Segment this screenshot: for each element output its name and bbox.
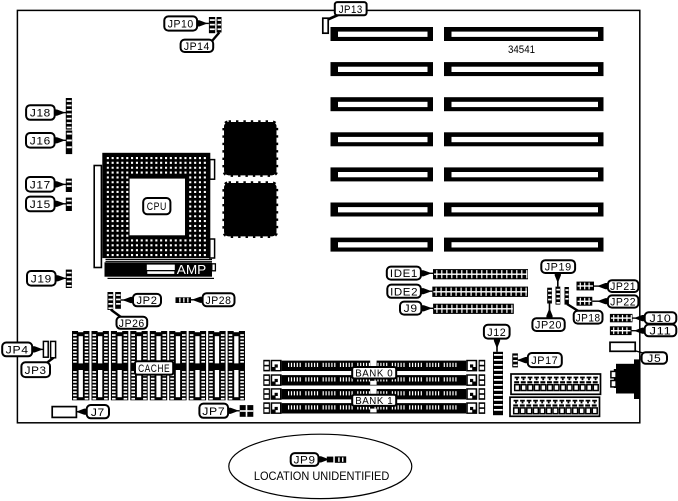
svg-text:BANK 1: BANK 1 bbox=[355, 396, 393, 407]
svg-text:JP2: JP2 bbox=[137, 295, 158, 307]
svg-text:JP19: JP19 bbox=[545, 262, 572, 274]
svg-text:JP22: JP22 bbox=[610, 297, 636, 309]
svg-text:J18: J18 bbox=[30, 108, 51, 120]
svg-text:J9: J9 bbox=[404, 303, 418, 315]
svg-text:LOCATION UNIDENTIFIED: LOCATION UNIDENTIFIED bbox=[254, 469, 390, 483]
svg-text:J16: J16 bbox=[30, 135, 51, 147]
svg-text:34541: 34541 bbox=[508, 44, 535, 56]
svg-text:J15: J15 bbox=[30, 199, 51, 211]
svg-text:J19: J19 bbox=[31, 273, 52, 285]
svg-text:AMP: AMP bbox=[177, 262, 207, 277]
svg-text:JP13: JP13 bbox=[339, 4, 363, 16]
svg-text:J10: J10 bbox=[650, 313, 672, 325]
svg-text:J17: J17 bbox=[30, 179, 51, 191]
svg-text:JP21: JP21 bbox=[610, 281, 636, 293]
svg-text:JP28: JP28 bbox=[206, 295, 232, 307]
svg-text:BANK 0: BANK 0 bbox=[355, 368, 393, 379]
svg-text:JP20: JP20 bbox=[535, 320, 562, 332]
svg-text:JP3: JP3 bbox=[25, 365, 47, 377]
svg-text:IDE2: IDE2 bbox=[390, 286, 418, 298]
svg-text:J7: J7 bbox=[91, 407, 105, 419]
svg-text:JP18: JP18 bbox=[576, 312, 601, 324]
svg-text:CACHE: CACHE bbox=[138, 363, 170, 375]
svg-text:J5: J5 bbox=[647, 353, 661, 365]
svg-text:JP9: JP9 bbox=[294, 455, 316, 467]
svg-text:JP14: JP14 bbox=[184, 41, 210, 53]
svg-text:J11: J11 bbox=[650, 326, 672, 338]
svg-text:JP17: JP17 bbox=[531, 355, 558, 367]
svg-text:JP26: JP26 bbox=[119, 318, 145, 330]
svg-text:JP7: JP7 bbox=[202, 406, 225, 418]
svg-text:JP10: JP10 bbox=[168, 19, 194, 31]
svg-text:J12: J12 bbox=[487, 327, 506, 339]
svg-text:IDE1: IDE1 bbox=[390, 268, 418, 280]
svg-text:JP4: JP4 bbox=[6, 345, 29, 357]
svg-text:CPU: CPU bbox=[147, 201, 167, 213]
